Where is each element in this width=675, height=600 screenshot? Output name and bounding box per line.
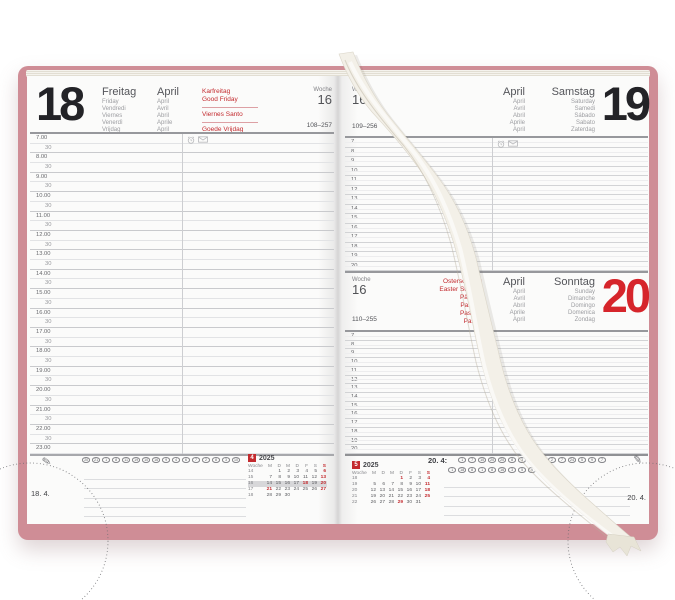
circled-number: 1 xyxy=(102,457,110,463)
time-label: 9.00 xyxy=(36,174,47,180)
circled-number: 20 xyxy=(488,457,496,463)
circled-number: 11 xyxy=(122,457,130,463)
circled-number: 8 xyxy=(468,467,476,473)
half-hour-line xyxy=(345,209,648,210)
pencil-icon: ✎ xyxy=(632,452,643,466)
weekday-names-friday: FreitagFridayVendrediViernesVenerdìVrijd… xyxy=(102,86,136,134)
time-label: 30 xyxy=(45,222,51,228)
circled-number: 7 xyxy=(558,457,566,463)
lang-line: Aprile xyxy=(157,120,179,127)
time-slot-row: 15 xyxy=(345,214,648,224)
circled-number: 2 xyxy=(548,457,556,463)
time-slot-row: 11 xyxy=(345,367,648,376)
week-block-left: Woche 16 xyxy=(284,87,332,107)
time-label: 21.00 xyxy=(36,407,51,413)
week-number-cell: 22 xyxy=(352,500,368,506)
circled-number: 16 xyxy=(528,457,536,463)
mini-calendar-grid: WocheMDMDFSS1812341956789101120121314151… xyxy=(352,471,434,506)
time-slot-row: 18 xyxy=(345,243,648,253)
lang-line: Freitag xyxy=(102,86,136,98)
half-hour-line xyxy=(345,161,648,162)
note-line xyxy=(84,489,246,498)
time-slot-row: 10 xyxy=(345,167,648,177)
half-hour-line xyxy=(345,345,648,346)
time-grid-sunday: 7891011121314151617181920 xyxy=(345,332,648,454)
time-slot-row: 19 xyxy=(345,252,648,262)
circled-number: 6 xyxy=(182,457,190,463)
note-line xyxy=(84,508,246,517)
time-label: 30 xyxy=(45,164,51,170)
mini-calendar-header: 42025 xyxy=(248,454,330,462)
day-cell xyxy=(422,500,431,506)
week-block-saturday: Woche 16 xyxy=(352,87,371,107)
lang-line: Friday xyxy=(102,99,136,106)
circled-number: 5 xyxy=(578,457,586,463)
half-hour-line xyxy=(345,228,648,229)
lang-line: Vendredi xyxy=(102,106,136,113)
day-cell: 30 xyxy=(404,500,413,506)
time-label: 15.00 xyxy=(36,290,51,296)
time-slot-row: 16 xyxy=(345,224,648,234)
circled-number: 3 xyxy=(518,457,526,463)
half-hour-line xyxy=(345,336,648,337)
circled-number: 10 xyxy=(478,457,486,463)
mini-calendar-april: 42025WocheMDMDFSS14123456157891011121316… xyxy=(248,454,330,499)
time-label: 30 xyxy=(45,242,51,248)
time-label: 16.00 xyxy=(36,310,51,316)
time-label: 30 xyxy=(45,280,51,286)
mini-calendar-may: 52025WocheMDMDFSS18123419567891011201213… xyxy=(352,461,434,506)
half-hour-line xyxy=(345,256,648,257)
day-cell: 29 xyxy=(395,500,404,506)
half-hour-line xyxy=(345,237,648,238)
time-slot-row: 9 xyxy=(345,157,648,167)
circled-number: 19 xyxy=(132,457,140,463)
day-of-year-left: 108–257 xyxy=(284,122,332,129)
time-slot-row: 17 xyxy=(345,233,648,243)
circled-number: 10 xyxy=(142,457,150,463)
time-slot-row: 7 xyxy=(345,332,648,341)
time-slot-row: 9 xyxy=(345,349,648,358)
time-label: 30 xyxy=(45,145,51,151)
holiday-line: Viernes Santo xyxy=(202,111,284,119)
note-line xyxy=(84,499,246,508)
time-slot-row: 17 xyxy=(345,419,648,428)
day-number-20: 20 xyxy=(570,272,648,319)
circled-number: 8 xyxy=(508,457,516,463)
holiday-separator xyxy=(202,107,258,108)
circled-number: 3 xyxy=(222,457,230,463)
circled-number: 8 xyxy=(212,457,220,463)
envelope-icon xyxy=(508,140,518,147)
timezone-circles-right-row2: 118818163591210 xyxy=(448,467,556,473)
day-cell: 28 xyxy=(264,493,273,499)
mini-calendar-grid: WocheMDMDFSS1412345615789101112131614151… xyxy=(248,464,330,499)
envelope-icon xyxy=(198,136,208,143)
circled-number: 21 xyxy=(92,457,100,463)
time-slot-row: 16 xyxy=(345,410,648,419)
pencil-icon: ✎ xyxy=(41,454,52,468)
lang-line: Zaterdag xyxy=(500,127,595,134)
half-hour-line xyxy=(345,353,648,354)
circled-number: 7 xyxy=(468,457,476,463)
lang-line: Venerdì xyxy=(102,120,136,127)
time-slot-row: 14 xyxy=(345,205,648,215)
time-label: 23.00 xyxy=(36,445,51,451)
half-hour-line xyxy=(345,180,648,181)
day-cell xyxy=(300,493,309,499)
time-label: 22.00 xyxy=(36,426,51,432)
holiday-line: Good Friday xyxy=(202,96,284,104)
month-number-badge: 4 xyxy=(248,454,256,462)
time-slot-row: 14 xyxy=(345,393,648,402)
time-label: 30 xyxy=(45,339,51,345)
half-hour-line xyxy=(345,218,648,219)
half-hour-line xyxy=(345,371,648,372)
day-number-18: 18 xyxy=(36,80,82,127)
half-hour-line xyxy=(345,388,648,389)
circled-number: 2 xyxy=(202,457,210,463)
circled-number: 8 xyxy=(488,467,496,473)
column-divider-left xyxy=(182,134,183,454)
time-slot-row: 11 xyxy=(345,176,648,186)
day-cell xyxy=(318,493,327,499)
half-hour-line xyxy=(345,247,648,248)
week-number: 16 xyxy=(352,283,371,297)
month-number-badge: 5 xyxy=(352,461,360,469)
half-hour-line xyxy=(345,414,648,415)
circled-number: 1 xyxy=(448,467,456,473)
time-label: 20.00 xyxy=(36,387,51,393)
half-hour-line xyxy=(345,379,648,380)
time-label: 30 xyxy=(45,319,51,325)
day-cell: 30 xyxy=(282,493,291,499)
time-label: 30 xyxy=(45,358,51,364)
half-hour-line xyxy=(345,266,648,267)
time-label: 12.00 xyxy=(36,232,51,238)
circled-number: 4 xyxy=(538,457,546,463)
half-hour-line xyxy=(345,362,648,363)
timezone-circles-right-row1: 17102020831642724597 xyxy=(458,457,606,463)
time-slot-row: 12 xyxy=(345,376,648,385)
day-cell: 31 xyxy=(413,500,422,506)
circled-number: 10 xyxy=(548,467,556,473)
lang-line: Viernes xyxy=(102,113,136,120)
time-slot-row: 13 xyxy=(345,384,648,393)
column-divider-saturday xyxy=(492,138,493,271)
half-hour-line xyxy=(345,406,648,407)
half-hour-line xyxy=(345,199,648,200)
circled-number: 5 xyxy=(518,467,526,473)
reminder-icons-left xyxy=(187,136,208,144)
half-hour-line xyxy=(345,449,648,450)
note-line xyxy=(84,480,246,489)
grid-end-rule-right xyxy=(345,454,648,456)
day-cell: 26 xyxy=(368,500,377,506)
day-cell xyxy=(291,493,300,499)
circled-number: 9 xyxy=(528,467,536,473)
time-label: 30 xyxy=(45,261,51,267)
day-cell: 28 xyxy=(386,500,395,506)
lang-line: April xyxy=(157,99,179,106)
circled-number: 3 xyxy=(508,467,516,473)
circled-number: 7 xyxy=(192,457,200,463)
time-slot-row: 13 xyxy=(345,195,648,205)
circled-number: 20 xyxy=(498,457,506,463)
half-hour-line xyxy=(345,152,648,153)
week-number-cell: 18 xyxy=(248,493,264,499)
circled-number: 12 xyxy=(538,467,546,473)
time-slot-row: 15 xyxy=(345,402,648,411)
half-hour-line xyxy=(345,397,648,398)
week-number: 16 xyxy=(352,93,371,107)
half-hour-line xyxy=(345,423,648,424)
time-slot-row: 8 xyxy=(345,341,648,350)
time-label: 30 xyxy=(45,300,51,306)
time-label: 30 xyxy=(45,397,51,403)
time-label: 10.00 xyxy=(36,193,51,199)
circled-number: 8 xyxy=(112,457,120,463)
circled-number: 9 xyxy=(588,457,596,463)
time-slot-row: 20 xyxy=(345,445,648,454)
corner-tab-date-right: 20. 4. xyxy=(602,493,646,502)
note-line xyxy=(444,479,630,488)
mini-calendar-header: 52025 xyxy=(352,461,434,469)
lang-line: Avril xyxy=(157,106,179,113)
time-label: 30 xyxy=(45,416,51,422)
half-hour-line xyxy=(345,440,648,441)
half-hour-line xyxy=(345,190,648,191)
time-label: 13.00 xyxy=(36,251,51,257)
circled-number: 1 xyxy=(458,457,466,463)
time-slot-row: 18 xyxy=(345,428,648,437)
alarm-clock-icon xyxy=(497,140,505,148)
time-label: 19.00 xyxy=(36,368,51,374)
circled-number: 16 xyxy=(498,467,506,473)
lang-line: April xyxy=(157,86,179,98)
circled-number: 10 xyxy=(232,457,240,463)
timezone-circles-left: 20211811191016946728310 xyxy=(82,457,240,463)
circled-number: 7 xyxy=(598,457,606,463)
circled-number: 24 xyxy=(568,457,576,463)
time-slot-row: 19 xyxy=(345,437,648,446)
time-label: 17.00 xyxy=(36,329,51,335)
month-names-april-left: AprilAprilAvrilAbrilAprileApril xyxy=(157,86,179,134)
note-lines-left xyxy=(84,471,246,517)
circled-number: 1 xyxy=(478,467,486,473)
year-label: 2025 xyxy=(259,455,275,462)
day-cell: 29 xyxy=(273,493,282,499)
day-of-year-saturday: 109–256 xyxy=(352,123,377,130)
circled-number: 4 xyxy=(172,457,180,463)
day-of-year-sunday: 110–255 xyxy=(352,316,377,323)
time-label: 30 xyxy=(45,203,51,209)
note-line xyxy=(444,507,630,516)
day-cell xyxy=(309,493,318,499)
column-divider-sunday xyxy=(492,332,493,454)
corner-tab-date-left: 18. 4. xyxy=(31,489,50,498)
time-slot-row: 10 xyxy=(345,358,648,367)
time-slot-row: 8 xyxy=(345,148,648,158)
holiday-separator xyxy=(202,122,258,123)
circled-number: 20 xyxy=(82,457,90,463)
lang-line: Abril xyxy=(157,113,179,120)
half-hour-line xyxy=(345,432,648,433)
time-label: 14.00 xyxy=(36,271,51,277)
week-block-sunday: Woche 16 xyxy=(352,277,371,297)
time-slot-row: 12 xyxy=(345,186,648,196)
week-number: 16 xyxy=(284,93,332,107)
reminder-icons-saturday xyxy=(497,140,518,148)
year-label: 2025 xyxy=(363,462,379,469)
diary-spread-photo: 18 FreitagFridayVendrediViernesVenerdìVr… xyxy=(0,0,675,600)
holiday-names-good-friday: KarfreitagGood FridayViernes SantoGoede … xyxy=(202,88,284,134)
time-label: 7.00 xyxy=(36,135,47,141)
half-hour-line xyxy=(345,171,648,172)
time-label: 30 xyxy=(45,377,51,383)
circled-number: 18 xyxy=(458,467,466,473)
time-label: 8.00 xyxy=(36,154,47,160)
holiday-line: Karfreitag xyxy=(202,88,284,96)
alarm-clock-icon xyxy=(187,136,195,144)
day-cell: 27 xyxy=(377,500,386,506)
circled-number: 16 xyxy=(152,457,160,463)
time-label: 30 xyxy=(45,436,51,442)
time-grid-saturday: 7891011121314151617181920 xyxy=(345,138,648,271)
time-label: 18.00 xyxy=(36,348,51,354)
time-label: 30 xyxy=(45,183,51,189)
day-number-19: 19 xyxy=(578,80,648,127)
time-label: 11.00 xyxy=(36,213,50,219)
circled-number: 9 xyxy=(162,457,170,463)
note-line xyxy=(84,471,246,480)
